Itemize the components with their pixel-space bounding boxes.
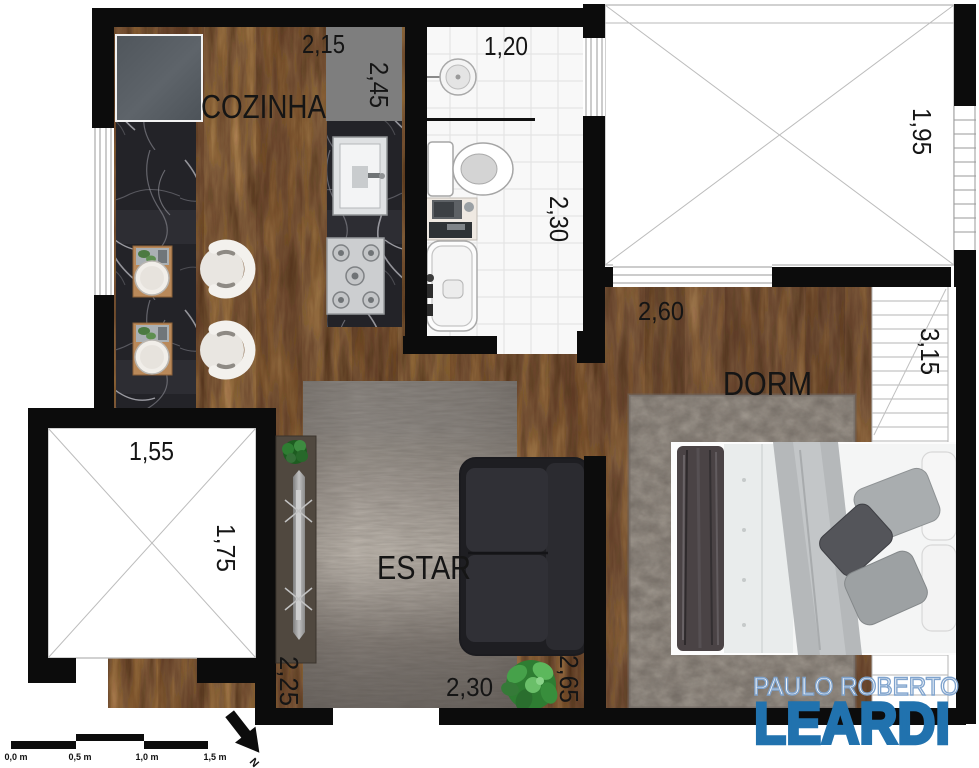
svg-text:1,5 m: 1,5 m bbox=[203, 752, 226, 762]
svg-text:2,15: 2,15 bbox=[302, 29, 345, 59]
svg-text:2,30: 2,30 bbox=[544, 196, 574, 242]
svg-text:2,30: 2,30 bbox=[446, 672, 493, 702]
svg-text:2,45: 2,45 bbox=[364, 62, 394, 108]
svg-text:DORM: DORM bbox=[723, 365, 812, 402]
svg-text:1,95: 1,95 bbox=[907, 108, 937, 155]
svg-text:LEARDI: LEARDI bbox=[754, 692, 950, 757]
svg-text:2,60: 2,60 bbox=[638, 296, 684, 326]
svg-text:1,20: 1,20 bbox=[484, 31, 528, 61]
svg-text:COZINHA: COZINHA bbox=[201, 88, 326, 125]
svg-text:0,5 m: 0,5 m bbox=[68, 752, 91, 762]
svg-text:0,0 m: 0,0 m bbox=[4, 752, 27, 762]
svg-text:3,15: 3,15 bbox=[915, 328, 945, 375]
svg-text:2,65: 2,65 bbox=[554, 655, 584, 703]
svg-text:1,75: 1,75 bbox=[211, 524, 241, 572]
svg-text:1,0 m: 1,0 m bbox=[135, 752, 158, 762]
svg-text:1,55: 1,55 bbox=[129, 436, 174, 466]
svg-text:2,25: 2,25 bbox=[274, 656, 304, 706]
svg-text:ESTAR: ESTAR bbox=[377, 549, 471, 586]
